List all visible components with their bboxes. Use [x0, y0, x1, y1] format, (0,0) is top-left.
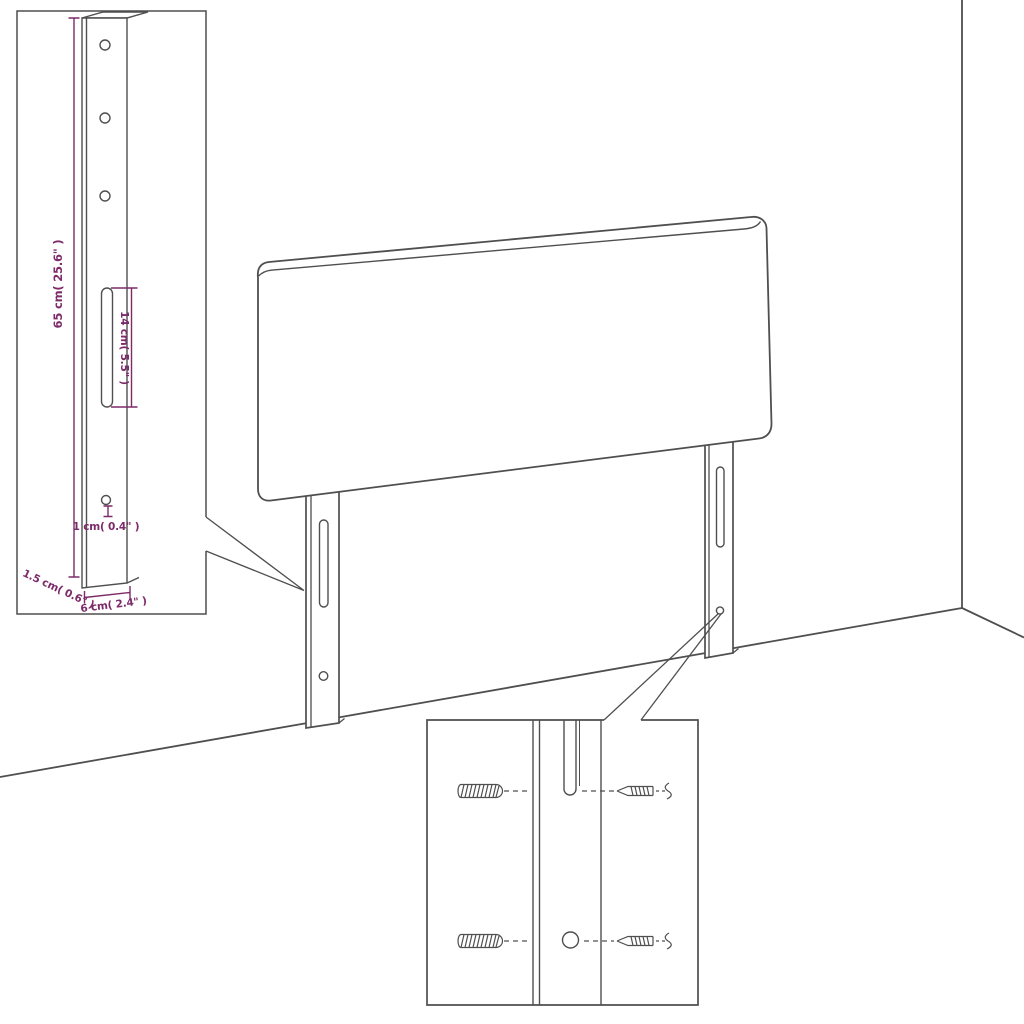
- left-leg-hole: [319, 672, 328, 681]
- dimension-inset: 65 cm( 25.6" ) 14 cm( 5.5" ) 1 cm( 0.4" …: [17, 11, 206, 615]
- bracket-foot-edge: [127, 578, 139, 584]
- hole-dimension-label: 1 cm( 0.4" ): [73, 521, 140, 533]
- leg-detail-hole: [563, 932, 579, 948]
- bracket-hole-middle: [100, 113, 110, 123]
- screw-icon: [617, 783, 671, 799]
- floor-line: [0, 608, 1024, 777]
- mounting-hardware-inset: [427, 720, 698, 1005]
- right-leg-hole: [716, 607, 723, 614]
- hardware-inset-border: [427, 720, 698, 1005]
- leg-detail-edges: [533, 720, 601, 1005]
- wall-plug-icon: [458, 935, 503, 948]
- wall-plug-icon: [458, 785, 503, 798]
- height-dimension-label: 65 cm( 25.6" ): [51, 240, 65, 329]
- alignment-dashed-lines: [504, 791, 614, 941]
- headboard-outline: [258, 217, 772, 501]
- hardware-items: [458, 783, 671, 949]
- right-leg: [705, 422, 739, 658]
- headboard-assembly-diagram: 65 cm( 25.6" ) 14 cm( 5.5" ) 1 cm( 0.4" …: [0, 0, 1024, 1024]
- left-leg: [306, 464, 345, 728]
- bracket-slot: [102, 288, 113, 407]
- headboard-assembly-diagram-page: 65 cm( 25.6" ) 14 cm( 5.5" ) 1 cm( 0.4" …: [0, 0, 1024, 1024]
- bracket-top-face: [82, 12, 148, 18]
- screw-icon: [617, 933, 671, 949]
- headboard-panel: [258, 217, 772, 501]
- callout-wedge-right-leg: [604, 614, 721, 721]
- leg-detail-slot: [564, 720, 576, 795]
- callout-wedge-left-leg: [206, 517, 304, 591]
- left-leg-slot: [320, 520, 329, 607]
- bracket-small-hole: [102, 496, 111, 505]
- callout-wedges: [206, 517, 721, 720]
- bracket-hole-top: [100, 40, 110, 50]
- leg-bracket-drawing: [82, 12, 148, 588]
- slot-dimension-label: 14 cm( 5.5" ): [118, 311, 130, 385]
- right-leg-slot: [717, 467, 725, 547]
- bracket-hole-lower: [100, 191, 110, 201]
- height-dimension-line: [69, 18, 80, 577]
- leg-detail-drawing: [533, 720, 601, 1005]
